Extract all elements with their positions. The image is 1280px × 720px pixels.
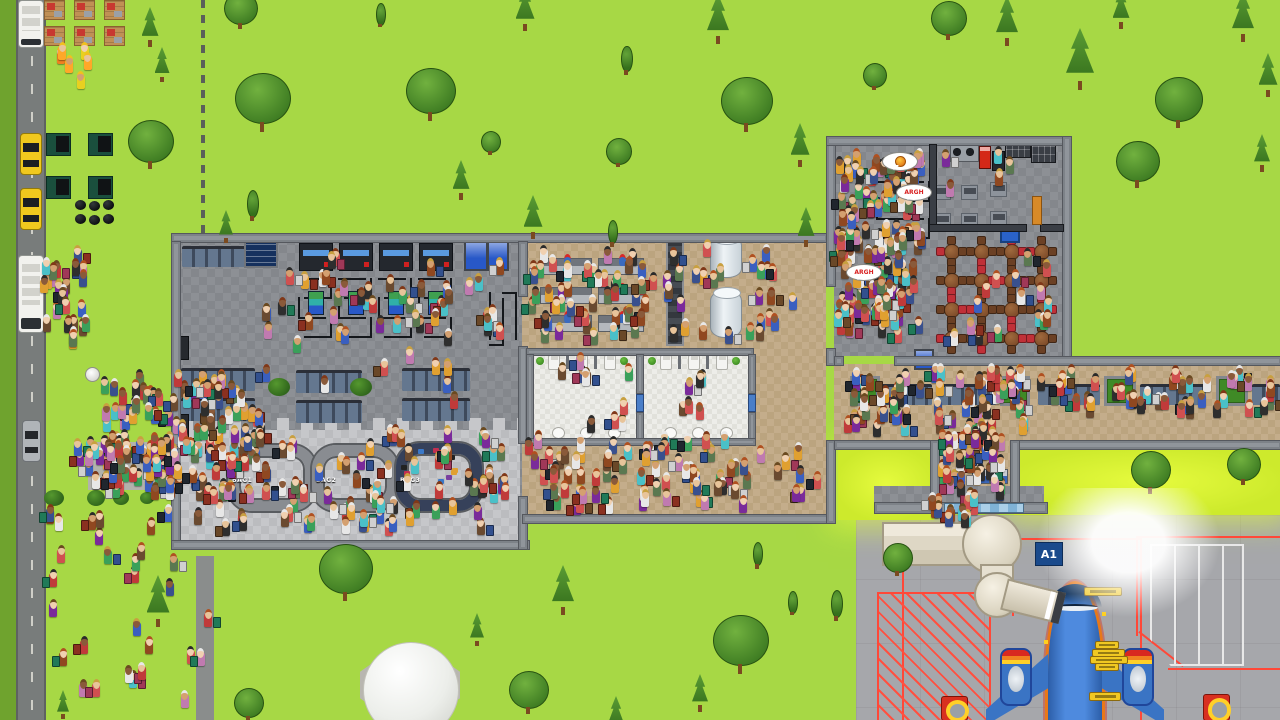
passenger[interactable] (174, 465, 182, 479)
dining-table[interactable] (938, 296, 964, 322)
passenger[interactable] (82, 318, 90, 332)
passenger[interactable] (638, 280, 646, 294)
passenger[interactable] (913, 226, 921, 240)
passenger[interactable] (101, 380, 109, 394)
passenger[interactable] (92, 683, 100, 697)
passenger[interactable] (197, 652, 205, 666)
passenger[interactable] (618, 417, 626, 431)
passenger[interactable] (435, 485, 443, 499)
passenger[interactable] (896, 378, 904, 392)
passenger[interactable] (910, 279, 918, 293)
passenger[interactable] (92, 475, 100, 489)
passenger[interactable] (946, 183, 954, 197)
passenger[interactable] (501, 486, 509, 500)
passenger[interactable] (49, 603, 57, 617)
chair[interactable] (977, 236, 986, 245)
passenger[interactable] (228, 455, 236, 469)
passenger[interactable] (813, 475, 821, 489)
dining-table[interactable] (968, 238, 994, 264)
bus[interactable] (18, 0, 44, 48)
passenger[interactable] (864, 249, 872, 263)
passenger[interactable] (653, 482, 661, 496)
passenger[interactable] (80, 640, 88, 654)
passenger[interactable] (692, 269, 700, 283)
passenger[interactable] (971, 434, 979, 448)
passenger[interactable] (1091, 377, 1099, 391)
trashbag[interactable] (103, 214, 114, 224)
passenger[interactable] (852, 418, 860, 432)
passenger[interactable] (693, 481, 701, 495)
passenger[interactable] (589, 298, 597, 312)
passenger[interactable] (577, 470, 585, 484)
passenger[interactable] (739, 499, 747, 513)
passenger[interactable] (549, 258, 557, 272)
passenger[interactable] (43, 318, 51, 332)
passenger[interactable] (637, 471, 645, 485)
passenger[interactable] (465, 281, 473, 295)
passenger[interactable] (104, 550, 112, 564)
passenger[interactable] (916, 384, 924, 398)
passenger[interactable] (475, 277, 483, 291)
tag[interactable] (1089, 692, 1121, 701)
passenger[interactable] (482, 434, 490, 448)
passenger[interactable] (625, 367, 633, 381)
chair[interactable] (1026, 334, 1035, 343)
passenger[interactable] (587, 419, 595, 433)
passenger[interactable] (942, 153, 950, 167)
passenger[interactable] (241, 457, 249, 471)
passenger[interactable] (755, 291, 763, 305)
chair[interactable] (947, 265, 956, 274)
passenger[interactable] (212, 466, 220, 480)
dumpster[interactable] (46, 176, 71, 199)
passenger[interactable] (710, 274, 718, 288)
bush[interactable] (87, 490, 105, 506)
trashbag[interactable] (89, 201, 100, 211)
passenger[interactable] (49, 266, 57, 280)
passenger[interactable] (1017, 368, 1025, 382)
passenger[interactable] (1056, 382, 1064, 396)
passenger[interactable] (1129, 393, 1137, 407)
passenger[interactable] (852, 371, 860, 385)
passenger[interactable] (1017, 291, 1025, 305)
chair[interactable] (966, 247, 975, 256)
passenger[interactable] (203, 383, 211, 397)
passenger[interactable] (928, 496, 936, 510)
passenger[interactable] (1267, 383, 1275, 397)
passenger[interactable] (218, 419, 226, 433)
passenger[interactable] (1137, 400, 1145, 414)
passenger[interactable] (1012, 273, 1020, 287)
passenger[interactable] (204, 613, 212, 627)
passenger[interactable] (376, 319, 384, 333)
bench[interactable] (182, 246, 246, 267)
passenger[interactable] (417, 283, 425, 297)
passenger[interactable] (449, 501, 457, 515)
passenger[interactable] (895, 254, 903, 268)
passenger[interactable] (902, 272, 910, 286)
passenger[interactable] (200, 426, 208, 440)
fuelpit[interactable] (941, 696, 968, 720)
passenger[interactable] (894, 329, 902, 343)
chair[interactable] (996, 305, 1005, 314)
passenger[interactable] (1043, 313, 1051, 327)
passenger[interactable] (170, 397, 178, 411)
passenger[interactable] (670, 328, 678, 342)
passenger[interactable] (534, 435, 542, 449)
passenger[interactable] (286, 271, 294, 285)
passenger[interactable] (611, 479, 619, 493)
passenger[interactable] (224, 486, 232, 500)
trashbag[interactable] (103, 200, 114, 210)
passenger[interactable] (153, 458, 161, 472)
trashbag[interactable] (89, 215, 100, 225)
passenger[interactable] (877, 392, 885, 406)
passenger[interactable] (561, 450, 569, 464)
passenger[interactable] (330, 310, 338, 324)
dining-table[interactable] (938, 238, 964, 264)
passenger[interactable] (59, 652, 67, 666)
passenger[interactable] (866, 377, 874, 391)
passenger[interactable] (57, 549, 65, 563)
passenger[interactable] (1227, 374, 1235, 388)
passenger[interactable] (611, 287, 619, 301)
pallet[interactable] (74, 0, 95, 20)
passenger[interactable] (129, 468, 137, 482)
passenger[interactable] (62, 300, 70, 314)
passenger[interactable] (541, 314, 549, 328)
passenger[interactable] (210, 490, 218, 504)
passenger[interactable] (496, 326, 504, 340)
passenger[interactable] (95, 531, 103, 545)
passenger[interactable] (69, 333, 77, 347)
passenger[interactable] (789, 296, 797, 310)
passenger[interactable] (441, 450, 449, 464)
passenger[interactable] (967, 321, 975, 335)
passenger[interactable] (1185, 379, 1193, 393)
passenger[interactable] (642, 452, 650, 466)
passenger[interactable] (657, 446, 665, 460)
passenger[interactable] (342, 460, 350, 474)
doorblue[interactable] (748, 394, 756, 412)
passenger[interactable] (883, 296, 891, 310)
passenger[interactable] (170, 557, 178, 571)
chair[interactable] (947, 236, 956, 245)
passenger[interactable] (240, 406, 248, 420)
toilet[interactable] (604, 355, 616, 370)
passenger[interactable] (496, 261, 504, 275)
passenger[interactable] (181, 694, 189, 708)
passenger[interactable] (873, 423, 881, 437)
passenger[interactable] (577, 438, 585, 452)
passenger[interactable] (965, 391, 973, 405)
passenger[interactable] (330, 505, 338, 519)
passenger[interactable] (366, 442, 374, 456)
chair[interactable] (936, 276, 945, 285)
passenger[interactable] (943, 469, 951, 483)
passenger[interactable] (590, 331, 598, 345)
passenger[interactable] (443, 379, 451, 393)
pallet[interactable] (104, 0, 125, 20)
toilet[interactable] (688, 355, 700, 370)
passenger[interactable] (1172, 369, 1180, 383)
passenger[interactable] (279, 444, 287, 458)
passenger[interactable] (255, 412, 263, 426)
passenger[interactable] (848, 215, 856, 229)
passenger[interactable] (357, 456, 365, 470)
passenger[interactable] (771, 317, 779, 331)
passenger[interactable] (620, 401, 628, 415)
passenger[interactable] (782, 456, 790, 470)
vendingred[interactable] (979, 146, 991, 169)
passenger[interactable] (582, 372, 590, 386)
passenger[interactable] (862, 225, 870, 239)
passenger[interactable] (484, 317, 492, 331)
passenger[interactable] (145, 406, 153, 420)
passenger[interactable] (956, 454, 964, 468)
passenger[interactable] (792, 488, 800, 502)
passenger[interactable] (898, 292, 906, 306)
passenger[interactable] (291, 480, 299, 494)
passenger[interactable] (117, 459, 125, 473)
passenger[interactable] (774, 466, 782, 480)
passenger[interactable] (201, 402, 209, 416)
passenger[interactable] (369, 299, 377, 313)
passenger[interactable] (541, 329, 549, 343)
passenger[interactable] (936, 382, 944, 396)
passenger[interactable] (432, 505, 440, 519)
passenger[interactable] (137, 546, 145, 560)
chair[interactable] (1048, 247, 1057, 256)
passenger[interactable] (1043, 263, 1051, 277)
construction-worker[interactable] (65, 59, 73, 73)
passenger[interactable] (592, 489, 600, 503)
passenger[interactable] (145, 640, 153, 654)
passenger[interactable] (874, 203, 882, 217)
passenger[interactable] (982, 284, 990, 298)
passenger[interactable] (412, 313, 420, 327)
passenger[interactable] (342, 520, 350, 534)
chair[interactable] (1048, 276, 1057, 285)
passenger[interactable] (307, 517, 315, 531)
passenger[interactable] (256, 433, 264, 447)
passenger[interactable] (1244, 377, 1252, 391)
passenger[interactable] (377, 499, 385, 513)
passenger[interactable] (649, 276, 657, 290)
passenger[interactable] (740, 461, 748, 475)
passenger[interactable] (244, 437, 252, 451)
passenger[interactable] (218, 446, 226, 460)
passenger[interactable] (696, 374, 704, 388)
passenger[interactable] (281, 513, 289, 527)
passenger[interactable] (1000, 385, 1008, 399)
passenger[interactable] (945, 513, 953, 527)
chair[interactable] (1037, 345, 1046, 354)
passenger[interactable] (46, 508, 54, 522)
passenger[interactable] (995, 172, 1003, 186)
passenger[interactable] (85, 452, 93, 466)
passenger[interactable] (1177, 404, 1185, 418)
bus[interactable] (18, 255, 44, 333)
passenger[interactable] (1117, 386, 1125, 400)
passenger[interactable] (579, 490, 587, 504)
passenger[interactable] (564, 283, 572, 297)
passenger[interactable] (757, 265, 765, 279)
passenger[interactable] (682, 465, 690, 479)
passenger[interactable] (164, 508, 172, 522)
passenger[interactable] (604, 453, 612, 467)
passenger[interactable] (262, 307, 270, 321)
passenger[interactable] (701, 496, 709, 510)
passenger[interactable] (403, 477, 411, 491)
construction-worker[interactable] (58, 46, 66, 60)
passenger[interactable] (1213, 404, 1221, 418)
passenger[interactable] (321, 379, 329, 393)
dining-table[interactable] (968, 267, 994, 293)
passenger[interactable] (994, 150, 1002, 164)
passenger[interactable] (1037, 286, 1045, 300)
passenger[interactable] (431, 312, 439, 326)
passenger[interactable] (696, 406, 704, 420)
passenger[interactable] (360, 513, 368, 527)
baggage-scanner[interactable] (379, 243, 413, 271)
passenger[interactable] (592, 472, 600, 486)
passenger[interactable] (909, 262, 917, 276)
passenger[interactable] (552, 300, 560, 314)
passenger[interactable] (550, 469, 558, 483)
passenger[interactable] (239, 517, 247, 531)
passenger[interactable] (992, 274, 1000, 288)
passenger[interactable] (845, 286, 853, 300)
passenger[interactable] (663, 492, 671, 506)
passenger[interactable] (328, 255, 336, 269)
radar-dome[interactable] (363, 642, 459, 720)
passenger[interactable] (531, 455, 539, 469)
passenger[interactable] (222, 522, 230, 536)
passenger[interactable] (861, 308, 869, 322)
passenger[interactable] (166, 479, 174, 493)
vendingblue[interactable] (464, 240, 488, 271)
dumpster[interactable] (88, 176, 113, 199)
passenger[interactable] (699, 326, 707, 340)
tag[interactable] (1084, 587, 1122, 596)
passenger[interactable] (837, 236, 845, 250)
passenger[interactable] (899, 236, 907, 250)
dumpster[interactable] (46, 133, 71, 156)
chair[interactable] (977, 265, 986, 274)
passenger[interactable] (1186, 400, 1194, 414)
passenger[interactable] (233, 407, 241, 421)
passenger[interactable] (572, 455, 580, 469)
passenger[interactable] (1198, 394, 1206, 408)
passenger[interactable] (584, 264, 592, 278)
passenger[interactable] (450, 395, 458, 409)
chair[interactable] (996, 247, 1005, 256)
passenger[interactable] (974, 299, 982, 313)
passenger[interactable] (40, 279, 48, 293)
passenger[interactable] (74, 442, 82, 456)
passenger[interactable] (49, 573, 57, 587)
passenger[interactable] (564, 264, 572, 278)
airplane-engine-left[interactable] (1000, 648, 1032, 706)
taxi[interactable] (20, 133, 42, 175)
passenger[interactable] (110, 382, 118, 396)
passenger[interactable] (756, 327, 764, 341)
passenger[interactable] (915, 320, 923, 334)
pallet[interactable] (44, 0, 65, 20)
passenger[interactable] (561, 484, 569, 498)
passenger[interactable] (1037, 377, 1045, 391)
passenger[interactable] (991, 478, 999, 492)
passenger[interactable] (870, 170, 878, 184)
passenger[interactable] (796, 469, 804, 483)
chair[interactable] (1048, 334, 1057, 343)
passenger[interactable] (384, 464, 392, 478)
passenger[interactable] (341, 330, 349, 344)
passenger[interactable] (558, 366, 566, 380)
passenger[interactable] (465, 472, 473, 486)
passenger[interactable] (406, 512, 414, 526)
bench[interactable] (296, 400, 362, 423)
doorblue[interactable] (636, 394, 644, 412)
passenger[interactable] (757, 449, 765, 463)
passenger[interactable] (1260, 401, 1268, 415)
passenger[interactable] (767, 291, 775, 305)
passenger[interactable] (480, 479, 488, 493)
tag[interactable] (1095, 663, 1119, 671)
passenger[interactable] (216, 503, 224, 517)
passenger[interactable] (1220, 394, 1228, 408)
passenger[interactable] (685, 381, 693, 395)
passenger[interactable] (118, 405, 126, 419)
passenger[interactable] (545, 288, 553, 302)
passenger[interactable] (305, 316, 313, 330)
chair[interactable] (1007, 323, 1016, 332)
passenger[interactable] (477, 521, 485, 535)
passenger[interactable] (119, 391, 127, 405)
passenger[interactable] (567, 302, 575, 316)
passenger[interactable] (386, 278, 394, 292)
passenger[interactable] (1125, 371, 1133, 385)
passenger[interactable] (702, 435, 710, 449)
passenger[interactable] (96, 514, 104, 528)
passenger[interactable] (444, 429, 452, 443)
chair[interactable] (966, 276, 975, 285)
passenger[interactable] (42, 261, 50, 275)
construction-worker[interactable] (77, 75, 85, 89)
passenger[interactable] (703, 243, 711, 257)
passenger[interactable] (594, 273, 602, 287)
passenger[interactable] (637, 312, 645, 326)
passenger[interactable] (262, 465, 270, 479)
passenger[interactable] (725, 330, 733, 344)
passenger[interactable] (890, 400, 898, 414)
passenger[interactable] (677, 298, 685, 312)
chair[interactable] (977, 345, 986, 354)
passenger[interactable] (884, 260, 892, 274)
passenger[interactable] (970, 493, 978, 507)
passenger[interactable] (231, 429, 239, 443)
passenger[interactable] (174, 373, 182, 387)
passenger[interactable] (132, 399, 140, 413)
toilet[interactable] (716, 355, 728, 370)
passenger[interactable] (55, 517, 63, 531)
passenger[interactable] (445, 290, 453, 304)
passenger[interactable] (855, 185, 863, 199)
dining-table[interactable] (938, 267, 964, 293)
passenger[interactable] (915, 200, 923, 214)
passenger[interactable] (731, 485, 739, 499)
